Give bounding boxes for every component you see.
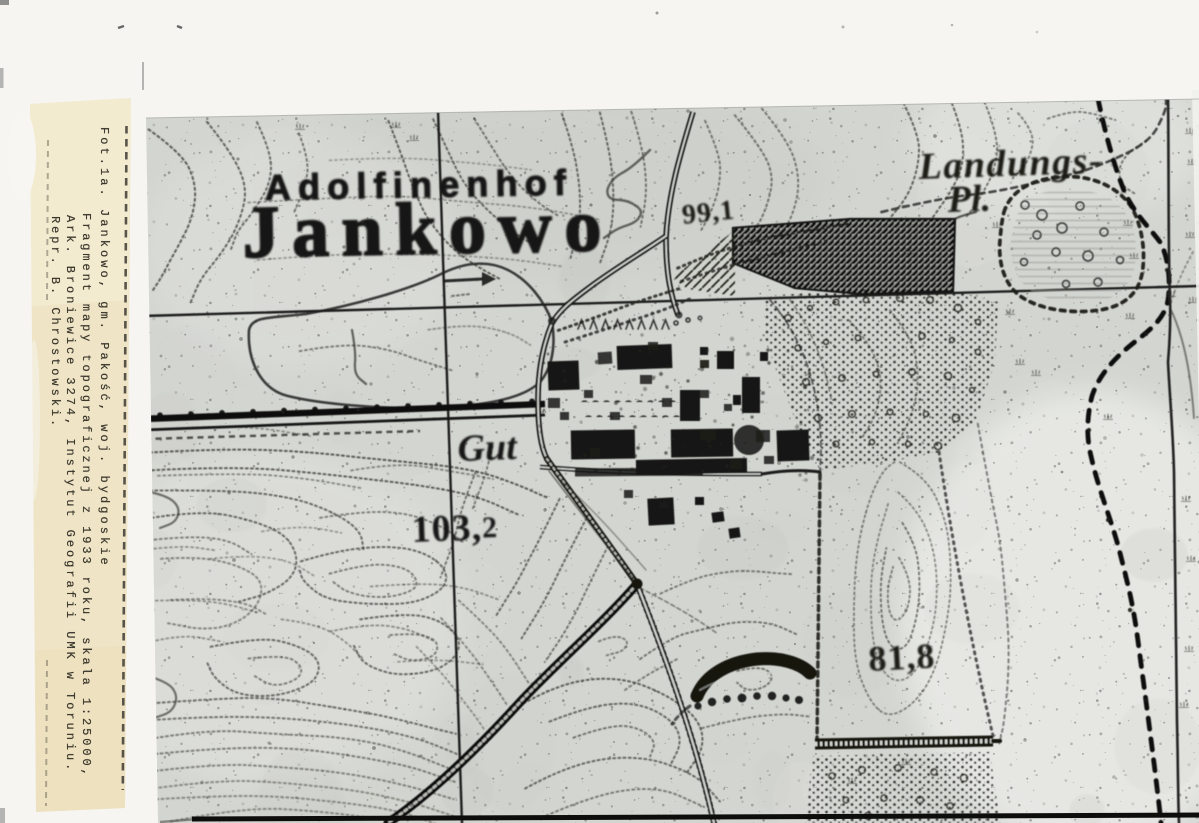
svg-text:81,8: 81,8: [867, 636, 936, 679]
svg-text:Gut: Gut: [457, 426, 519, 470]
svg-text:99,1: 99,1: [680, 195, 736, 231]
svg-text:Jankowo: Jankowo: [242, 185, 615, 274]
svg-text:Landungs-: Landungs-: [917, 140, 1104, 188]
svg-text:Pl.: Pl.: [946, 178, 992, 222]
svg-text:103,2: 103,2: [411, 506, 499, 551]
